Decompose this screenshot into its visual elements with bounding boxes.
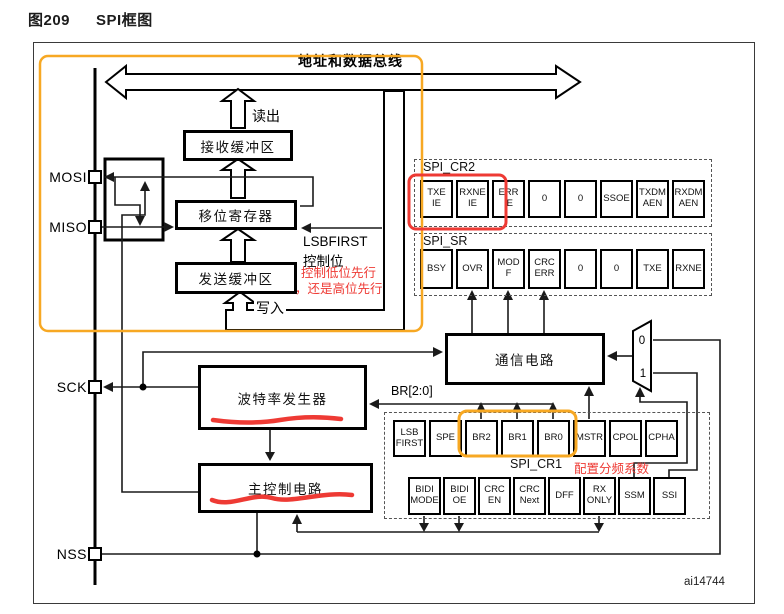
baud-rate-generator-block: 波特率发生器 — [198, 365, 367, 430]
nss-pin — [89, 548, 101, 560]
register-bit: CRCERR — [528, 249, 561, 289]
rx-buffer-block: 接收缓冲区 — [183, 130, 293, 161]
comm-circuit-label: 通信电路 — [495, 349, 555, 369]
register-bit: RXONLY — [583, 477, 616, 515]
register-bit: BIDIOE — [443, 477, 476, 515]
register-bit: MODF — [492, 249, 525, 289]
sck-junction-dot — [140, 384, 147, 391]
register-bit: DFF — [548, 477, 581, 515]
nss-mux-shape — [633, 321, 651, 391]
pin-logic-box — [105, 159, 163, 240]
register-bit: TXE — [636, 249, 669, 289]
register-bit: SSM — [618, 477, 651, 515]
lsb-note-line2: ，还是高位先行 — [295, 278, 383, 297]
tx-buffer-block: 发送缓冲区 — [175, 262, 297, 294]
tx-buffer-label: 发送缓冲区 — [199, 268, 274, 288]
register-bit: LSBFIRST — [393, 420, 426, 457]
artifact-id: ai14744 — [684, 576, 725, 588]
shift-to-rx-arrow — [222, 159, 254, 198]
mosi-label: MOSI — [40, 169, 87, 185]
shift-register-label: 移位寄存器 — [199, 205, 274, 225]
spi-cr2-title: SPI_CR2 — [423, 160, 475, 174]
rx-buffer-label: 接收缓冲区 — [201, 136, 276, 156]
bus-label: 地址和数据总线 — [298, 51, 403, 71]
spi-block-diagram: 图209SPI框图 — [0, 0, 784, 614]
register-bit: BR1 — [501, 420, 534, 457]
register-bit: RXDMAEN — [672, 180, 705, 218]
register-bit: CRCEN — [478, 477, 511, 515]
spi-cr2-bits: TXEIERXNEIEERRIE00SSOETXDMAENRXDMAEN — [420, 180, 705, 218]
register-bit: ERRIE — [492, 180, 525, 218]
sck-label: SCK — [40, 379, 87, 395]
register-bit: MSTR — [573, 420, 606, 457]
register-bit: 0 — [564, 249, 597, 289]
spi-cr1-bits-row2: BIDIMODEBIDIOECRCENCRCNextDFFRXONLYSSMSS… — [408, 477, 686, 515]
register-bit: BSY — [420, 249, 453, 289]
register-bit: 0 — [528, 180, 561, 218]
wire-layer: 0 1 — [0, 0, 784, 614]
register-bit: BIDIMODE — [408, 477, 441, 515]
spi-sr-bits: BSYOVRMODFCRCERR00TXERXNE — [420, 249, 705, 289]
register-bit: SSI — [653, 477, 686, 515]
br-note: 配置分频系数 — [574, 458, 649, 477]
nss-junction-dot — [254, 551, 261, 558]
nss-label: NSS — [40, 546, 87, 562]
register-bit: OVR — [456, 249, 489, 289]
read-arrow — [222, 89, 254, 128]
read-label: 读出 — [252, 106, 280, 126]
register-bit: 0 — [564, 180, 597, 218]
register-bit: BR0 — [537, 420, 570, 457]
register-bit: RXNE — [672, 249, 705, 289]
register-bit: CRCNext — [513, 477, 546, 515]
write-label: 写入 — [254, 298, 286, 318]
register-bit: CPOL — [609, 420, 642, 457]
spi-cr1-title: SPI_CR1 — [510, 457, 562, 471]
master-control-label: 主控制电路 — [248, 478, 323, 498]
master-control-block: 主控制电路 — [198, 463, 373, 513]
lsbfirst-label: LSBFIRST — [303, 234, 368, 249]
register-bit: SSOE — [600, 180, 633, 218]
spi-cr1-bits-row1: LSBFIRSTSPEBR2BR1BR0MSTRCPOLCPHA — [393, 420, 678, 457]
miso-pin — [89, 221, 101, 233]
mux-input-0-label: 0 — [639, 335, 645, 347]
spi-sr-title: SPI_SR — [423, 234, 467, 248]
register-bit: BR2 — [465, 420, 498, 457]
register-bit: TXEIE — [420, 180, 453, 218]
register-bit: CPHA — [645, 420, 678, 457]
mux-input-1-label: 1 — [640, 368, 646, 380]
register-bit: 0 — [600, 249, 633, 289]
register-bit: TXDMAEN — [636, 180, 669, 218]
miso-label: MISO — [40, 219, 87, 235]
register-bit: SPE — [429, 420, 462, 457]
mosi-pin — [89, 171, 101, 183]
register-bit: RXNEIE — [456, 180, 489, 218]
br-bits-label: BR[2:0] — [391, 384, 433, 398]
tx-to-shift-arrow — [222, 229, 254, 262]
shift-register-block: 移位寄存器 — [175, 200, 297, 230]
sck-pin — [89, 381, 101, 393]
baud-rate-generator-label: 波特率发生器 — [238, 388, 328, 408]
comm-circuit-block: 通信电路 — [445, 333, 605, 385]
